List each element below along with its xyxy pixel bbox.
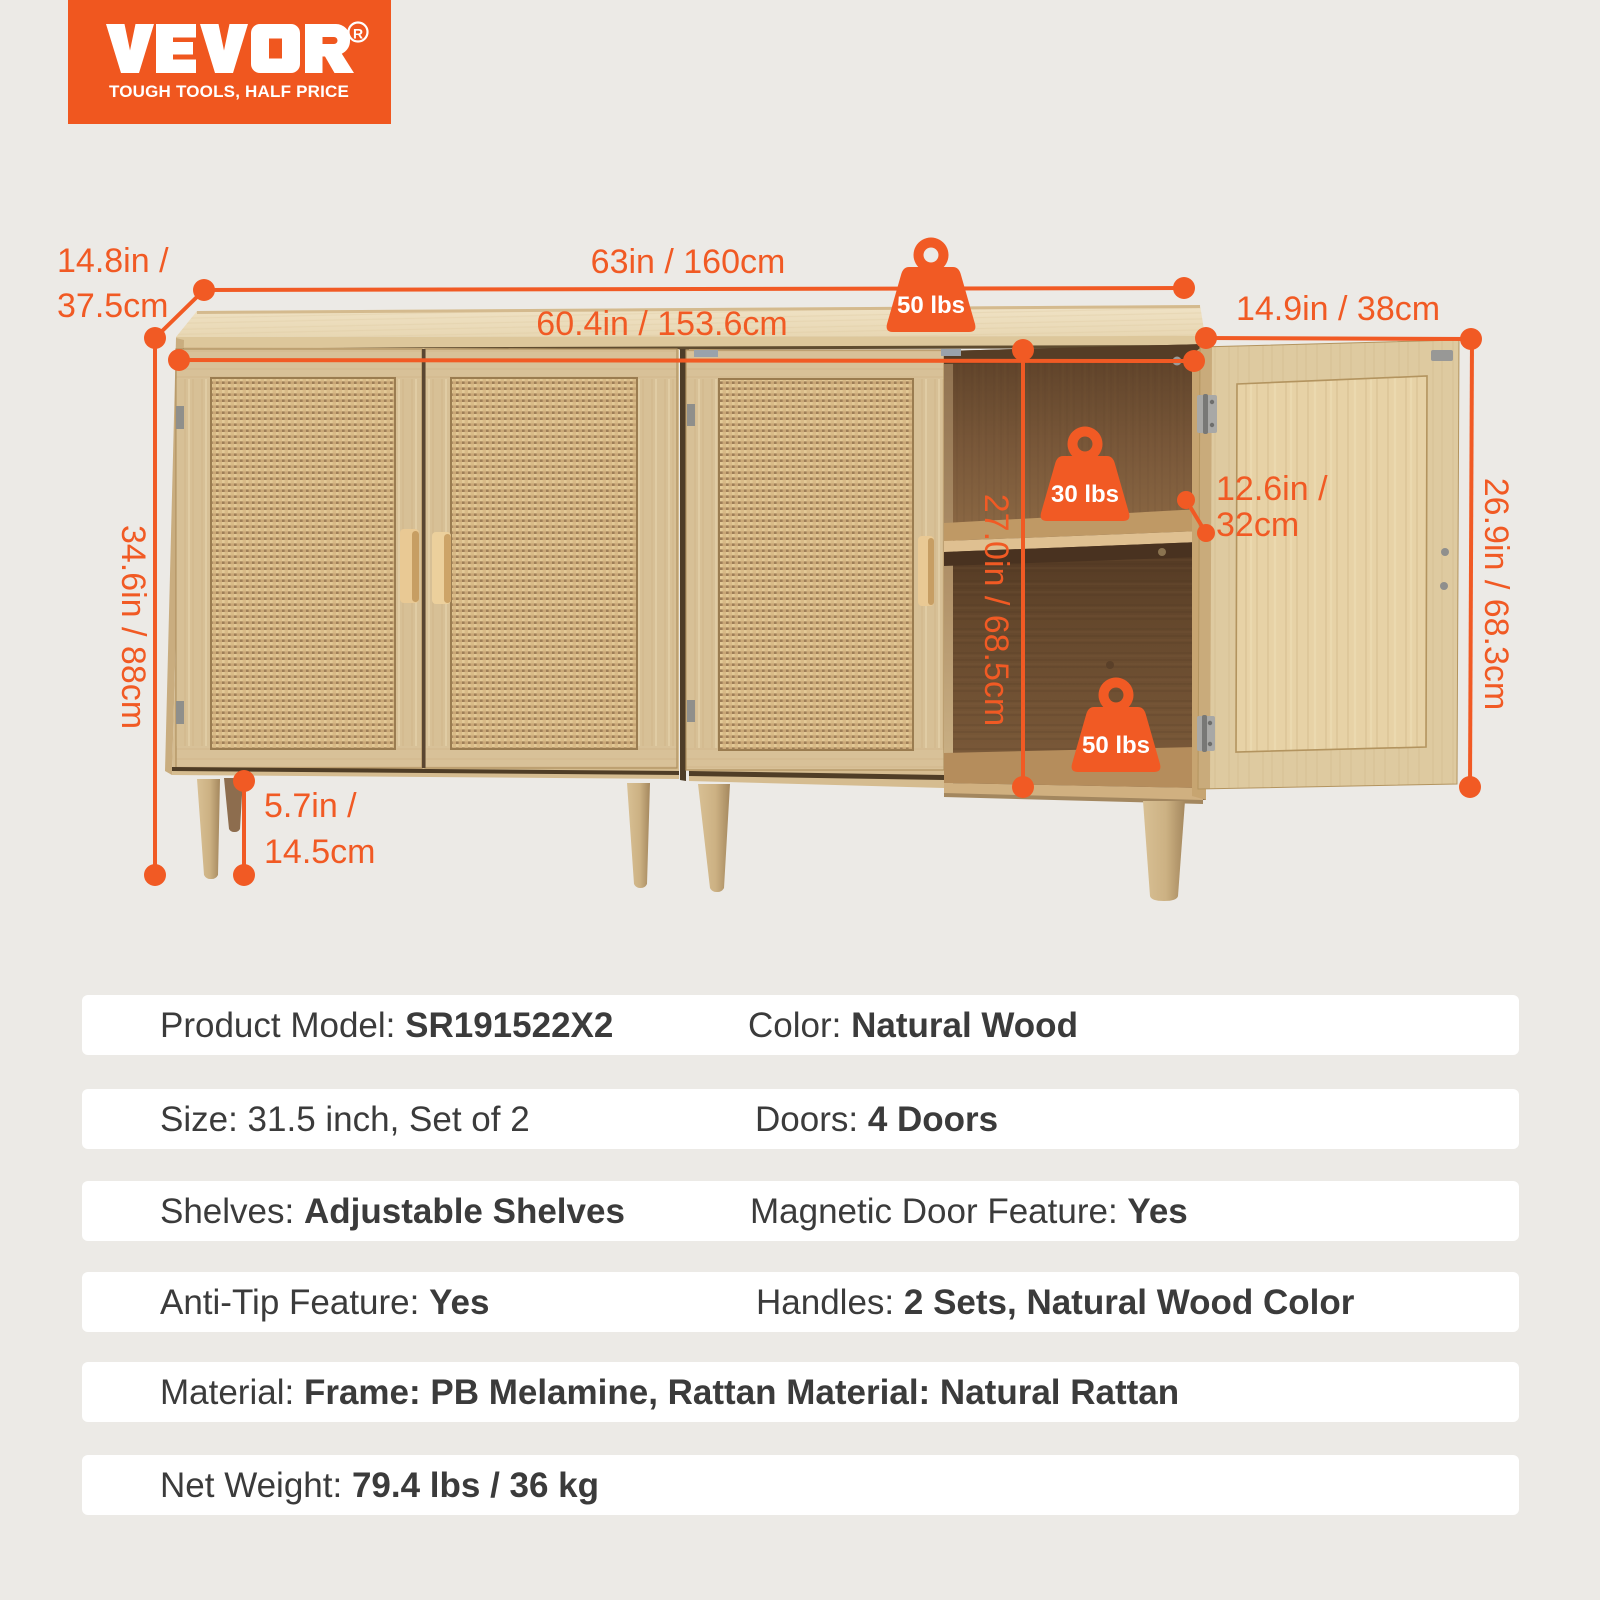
svg-text:12.6in /: 12.6in / [1216,470,1328,508]
svg-text:50 lbs: 50 lbs [897,292,965,319]
svg-text:32cm: 32cm [1216,506,1299,544]
svg-text:50 lbs: 50 lbs [1082,732,1150,759]
svg-text:Net Weight: 79.4 lbs / 36 kg: Net Weight: 79.4 lbs / 36 kg [160,1466,599,1505]
svg-text:14.5cm: 14.5cm [264,833,376,871]
svg-text:26.9in / 68.3cm: 26.9in / 68.3cm [1477,478,1515,710]
svg-text:34.6in / 88cm: 34.6in / 88cm [114,525,152,729]
svg-text:Doors: 4 Doors: Doors: 4 Doors [755,1100,998,1139]
svg-text:30 lbs: 30 lbs [1051,481,1119,508]
svg-text:63in / 160cm: 63in / 160cm [591,243,786,281]
svg-text:37.5cm: 37.5cm [57,287,169,325]
svg-text:Magnetic Door Feature: Yes: Magnetic Door Feature: Yes [750,1192,1188,1231]
svg-text:60.4in / 153.6cm: 60.4in / 153.6cm [536,305,787,343]
svg-text:Handles: 2 Sets, Natural Wood: Handles: 2 Sets, Natural Wood Color [756,1283,1355,1322]
svg-text:R: R [353,26,363,42]
svg-text:Size: 31.5 inch, Set of 2: Size: 31.5 inch, Set of 2 [160,1100,530,1139]
svg-text:27.0in / 68.5cm: 27.0in / 68.5cm [977,494,1015,726]
svg-text:14.9in / 38cm: 14.9in / 38cm [1236,290,1440,328]
svg-text:Product Model: SR191522X2: Product Model: SR191522X2 [160,1006,613,1045]
svg-text:Material: Frame: PB Melamine,: Material: Frame: PB Melamine, Rattan Mat… [160,1373,1179,1412]
svg-text:Anti-Tip Feature: Yes: Anti-Tip Feature: Yes [160,1283,489,1322]
svg-text:Shelves: Adjustable Shelves: Shelves: Adjustable Shelves [160,1192,625,1231]
svg-text:TOUGH TOOLS, HALF PRICE: TOUGH TOOLS, HALF PRICE [109,82,349,101]
svg-text:14.8in /: 14.8in / [57,242,169,280]
svg-text:Color: Natural Wood: Color: Natural Wood [748,1006,1078,1045]
svg-text:5.7in /: 5.7in / [264,787,357,825]
